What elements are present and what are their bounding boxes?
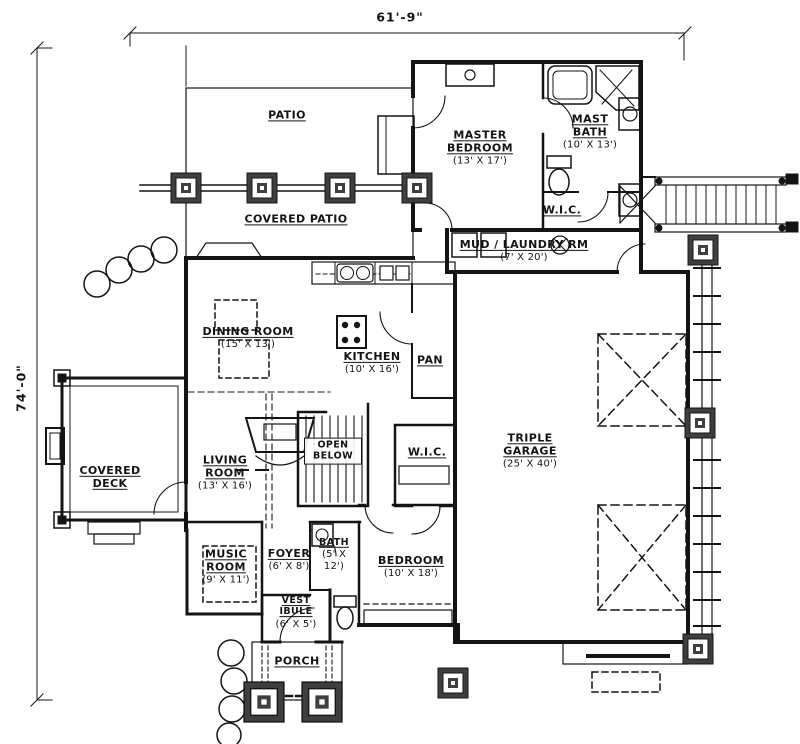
room-dims: (7' X 20') xyxy=(414,252,634,264)
room-dims: (15' X 13') xyxy=(183,339,313,351)
room-dims: (13' X 17') xyxy=(430,156,530,168)
room-label-bedroom: BEDROOM (10' X 18') xyxy=(356,554,466,580)
room-label-covered-patio: COVERED PATIO xyxy=(211,212,381,225)
room-label-living-room: LIVING ROOM (13' X 16') xyxy=(193,453,257,492)
room-label-triple-garage: TRIPLE GARAGE (25' X 40') xyxy=(489,431,571,470)
room-name: PATIO xyxy=(227,108,347,121)
room-name: BEDROOM xyxy=(356,554,466,567)
dimension-height-label: 74'-0" xyxy=(14,364,29,412)
room-dims: (5' X 12') xyxy=(311,549,357,573)
room-name: PAN xyxy=(406,353,454,366)
room-name: VEST IBULE xyxy=(270,595,322,618)
room-dims: (13' X 16') xyxy=(193,481,257,493)
room-label-master-bedroom: MASTER BEDROOM (13' X 17') xyxy=(430,128,530,167)
room-name: OPEN BELOW xyxy=(307,440,359,463)
room-label-dining-room: DINING ROOM (15' X 13') xyxy=(183,325,313,351)
floor-plan-page: 61'-9" 74'-0" PATIO COVERED PATIO MASTER… xyxy=(0,0,800,744)
room-label-open-below: OPEN BELOW xyxy=(304,438,362,465)
room-name: DINING ROOM xyxy=(183,325,313,338)
room-name: TRIPLE GARAGE xyxy=(489,431,571,457)
garage-entry-bottom xyxy=(563,642,688,692)
room-name: MUD / LAUNDRY RM xyxy=(414,238,634,251)
wic-center xyxy=(395,425,455,534)
room-dims: (9' X 11') xyxy=(194,575,258,587)
exterior-stair xyxy=(620,174,798,232)
room-dims: (25' X 40') xyxy=(489,459,571,471)
room-label-covered-deck: COVERED DECK xyxy=(65,464,155,490)
room-label-mast-bath: MAST BATH (10' X 13') xyxy=(561,112,619,151)
room-name: MAST BATH xyxy=(561,112,619,138)
room-label-vestibule: VEST IBULE (6' X 5') xyxy=(270,595,322,631)
room-dims: (10' X 13') xyxy=(561,140,619,152)
covered-deck xyxy=(46,370,186,544)
room-label-pantry: PAN xyxy=(406,353,454,366)
room-name: BATH xyxy=(311,537,357,548)
room-label-patio: PATIO xyxy=(227,108,347,121)
room-label-wic-stairs: W.I.C. xyxy=(392,445,462,458)
room-label-bath: BATH (5' X 12') xyxy=(311,537,357,573)
room-label-porch: PORCH xyxy=(262,654,332,667)
room-dims: (10' X 18') xyxy=(356,568,466,580)
room-name: MUSIC ROOM xyxy=(194,547,258,573)
room-name: PORCH xyxy=(262,654,332,667)
room-label-music-room: MUSIC ROOM (9' X 11') xyxy=(194,547,258,586)
room-dims: (6' X 5') xyxy=(270,619,322,631)
room-name: COVERED DECK xyxy=(65,464,155,490)
side-railing xyxy=(694,238,720,645)
room-name: W.I.C. xyxy=(527,203,597,216)
dimension-width-label: 61'-9" xyxy=(376,10,424,25)
room-name: MASTER BEDROOM xyxy=(430,128,530,154)
room-name: LIVING ROOM xyxy=(193,453,257,479)
garage-door-panels xyxy=(598,334,686,610)
room-name: W.I.C. xyxy=(392,445,462,458)
room-name: COVERED PATIO xyxy=(211,212,381,225)
room-label-mud-laundry: MUD / LAUNDRY RM (7' X 20') xyxy=(414,238,634,264)
room-label-wic-master: W.I.C. xyxy=(527,203,597,216)
